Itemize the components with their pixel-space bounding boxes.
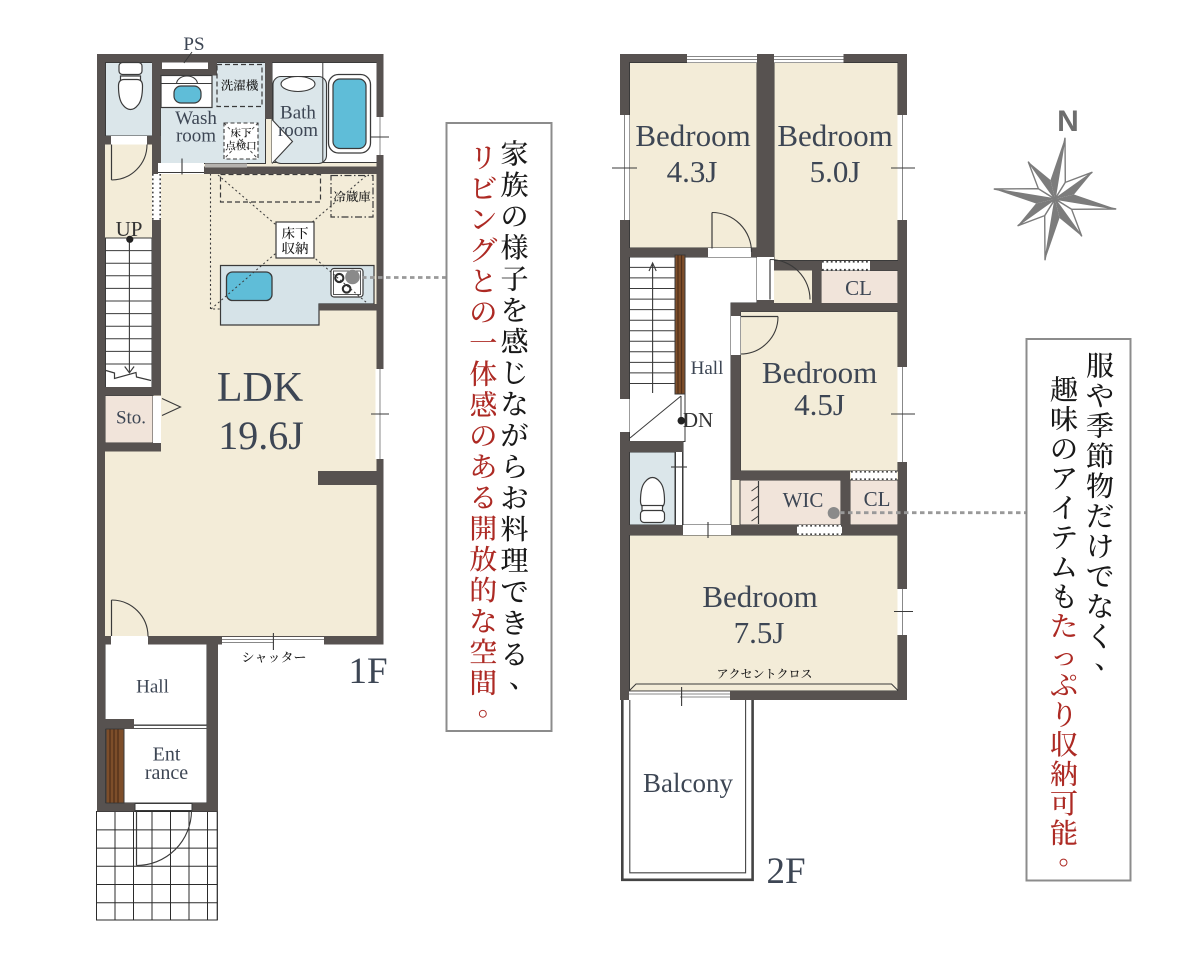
svg-text:1F: 1F (348, 651, 387, 692)
svg-text:Bedroom: Bedroom (702, 579, 817, 614)
svg-text:rance: rance (145, 762, 188, 784)
svg-text:Balcony: Balcony (643, 768, 733, 798)
svg-text:Bedroom: Bedroom (762, 355, 877, 390)
svg-text:2F: 2F (766, 851, 805, 892)
svg-text:room: room (278, 120, 318, 141)
svg-text:CL: CL (864, 487, 891, 511)
svg-text:LDK: LDK (217, 365, 303, 411)
svg-text:Hall: Hall (136, 677, 169, 698)
svg-text:4.3J: 4.3J (667, 154, 718, 189)
svg-text:4.5J: 4.5J (794, 387, 845, 422)
svg-text:Sto.: Sto. (116, 408, 146, 429)
svg-text:19.6J: 19.6J (218, 413, 304, 458)
svg-text:DN: DN (683, 408, 713, 432)
svg-text:room: room (176, 126, 216, 147)
svg-text:CL: CL (845, 276, 872, 300)
svg-text:N: N (1057, 105, 1079, 138)
svg-text:Bedroom: Bedroom (777, 118, 892, 153)
svg-text:Bedroom: Bedroom (635, 118, 750, 153)
svg-text:Hall: Hall (691, 358, 724, 379)
svg-text:5.0J: 5.0J (810, 154, 861, 189)
svg-text:PS: PS (183, 34, 204, 55)
svg-text:WIC: WIC (783, 488, 824, 512)
svg-text:7.5J: 7.5J (734, 615, 785, 650)
svg-text:UP: UP (116, 217, 143, 241)
